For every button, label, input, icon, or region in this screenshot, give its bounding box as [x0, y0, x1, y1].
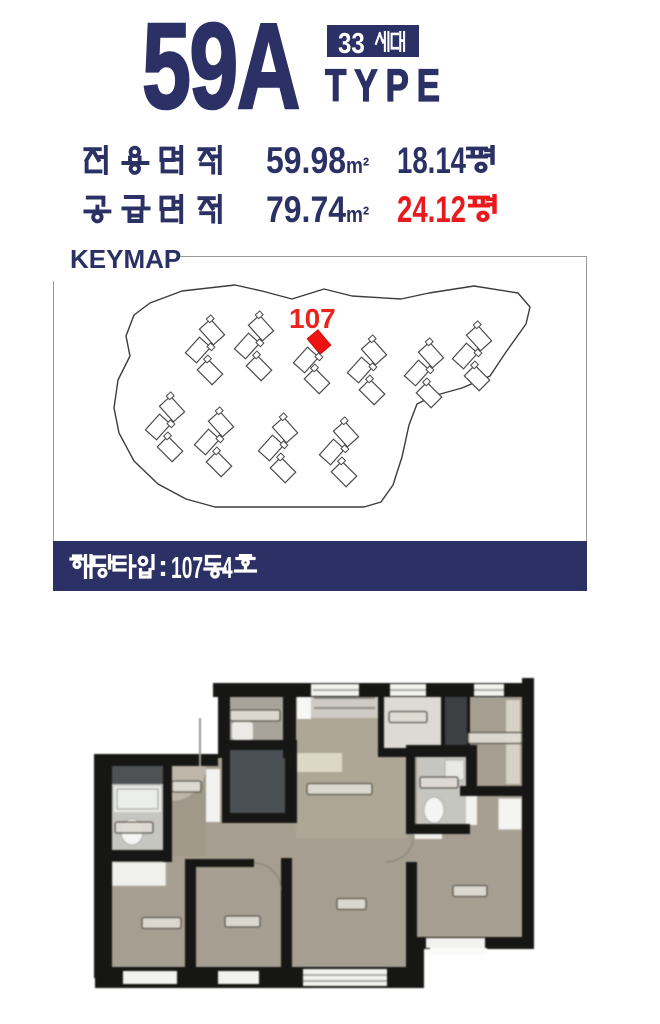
svg-text:107: 107 [289, 303, 336, 334]
